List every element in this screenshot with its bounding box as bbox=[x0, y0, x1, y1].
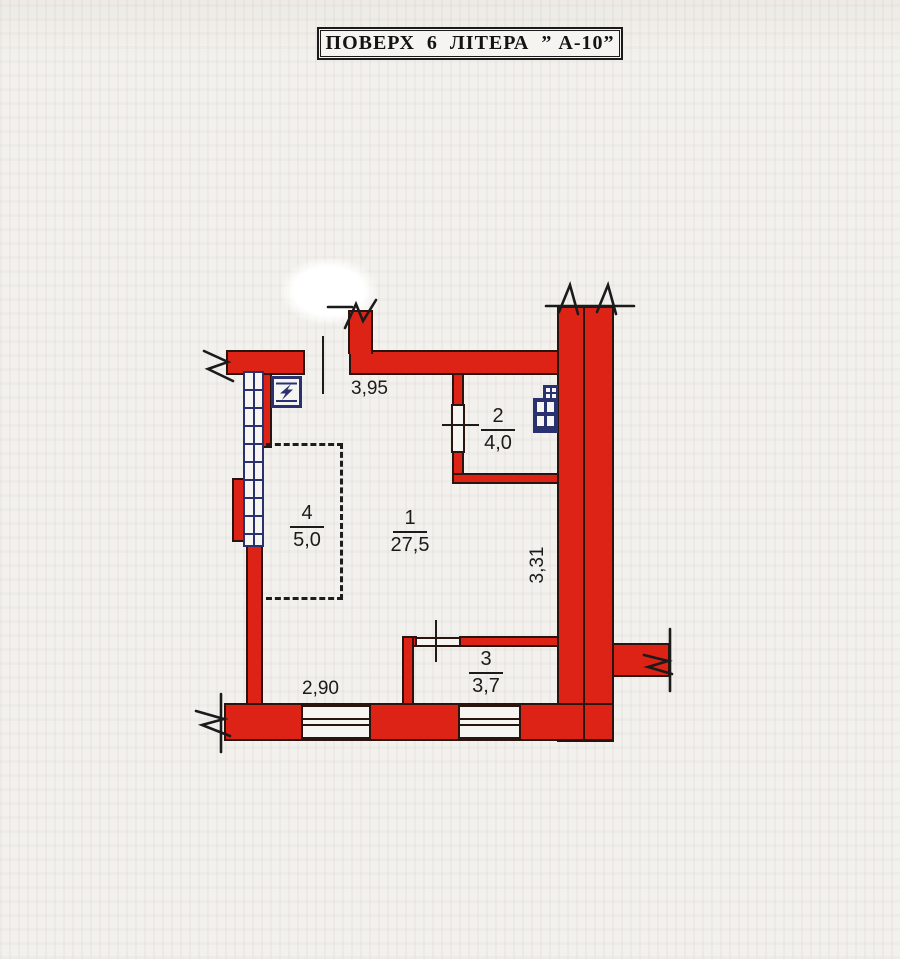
scanned-floor-plan-page: { "title": "ПОВЕРХ 6 ЛІТЕРА ” А-10”", "p… bbox=[0, 0, 900, 959]
room4-label: 4 5,0 bbox=[281, 503, 333, 551]
ventilation-shaft-icon bbox=[533, 385, 558, 433]
room2-label: 2 4,0 bbox=[473, 406, 523, 454]
wall-room2-left-upper bbox=[452, 372, 464, 406]
electric-panel-icon bbox=[271, 376, 302, 408]
door-room2 bbox=[451, 404, 465, 453]
dimension-bottom: 2,90 bbox=[302, 678, 339, 700]
wall-bottom bbox=[224, 703, 614, 741]
tick-top-opening bbox=[322, 336, 324, 394]
window-pane-line bbox=[460, 718, 519, 720]
wall-right-divider-line bbox=[583, 308, 585, 740]
wall-room3-top-right bbox=[459, 636, 562, 647]
wall-stub-up bbox=[348, 310, 373, 354]
room3-number: 3 bbox=[469, 649, 502, 674]
window-pane-line bbox=[303, 724, 369, 726]
tick-room3-door bbox=[435, 620, 437, 662]
wall-right-outer bbox=[557, 306, 614, 742]
room1-label: 1 27,5 bbox=[378, 508, 442, 556]
wall-top-left-segment bbox=[226, 350, 305, 375]
room4-number: 4 bbox=[290, 503, 323, 528]
room1-area: 27,5 bbox=[378, 535, 442, 556]
room2-number: 2 bbox=[481, 406, 514, 431]
room4-area: 5,0 bbox=[281, 530, 333, 551]
dimension-right: 3,31 bbox=[527, 535, 551, 595]
dimension-top: 3,95 bbox=[351, 378, 388, 400]
window-pane-line bbox=[303, 718, 369, 720]
room2-area: 4,0 bbox=[473, 433, 523, 454]
title-box-inner-border: ПОВЕРХ 6 ЛІТЕРА ” А-10” bbox=[320, 30, 620, 57]
door-room3 bbox=[415, 637, 461, 647]
room3-area: 3,7 bbox=[460, 676, 512, 697]
title-box: ПОВЕРХ 6 ЛІТЕРА ” А-10” bbox=[317, 27, 623, 60]
wall-top-main-segment bbox=[349, 350, 560, 375]
window-bottom-1 bbox=[301, 705, 371, 739]
wall-room3-left bbox=[402, 636, 414, 706]
page-title: ПОВЕРХ 6 ЛІТЕРА ” А-10” bbox=[326, 32, 615, 55]
wall-room2-bottom bbox=[452, 473, 562, 484]
wall-right-extension bbox=[612, 643, 670, 677]
window-pane-line bbox=[460, 724, 519, 726]
room3-label: 3 3,7 bbox=[460, 649, 512, 697]
wall-break-marks bbox=[0, 0, 900, 959]
window-bottom-2 bbox=[458, 705, 521, 739]
room1-number: 1 bbox=[393, 508, 426, 533]
glazed-window-left bbox=[243, 371, 264, 547]
wall-left-lower bbox=[246, 538, 263, 706]
